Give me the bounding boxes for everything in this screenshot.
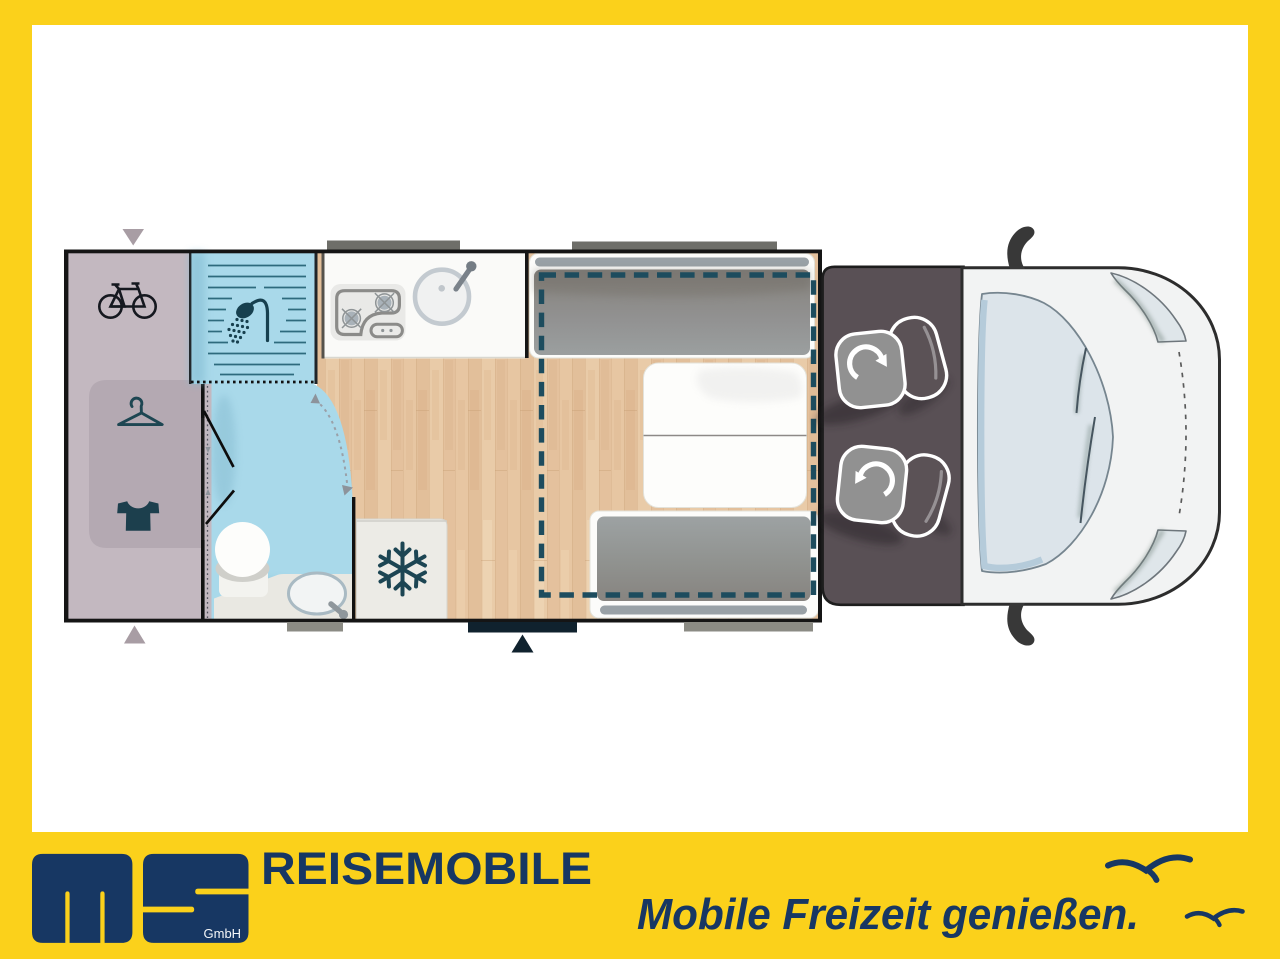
svg-text:REISEMOBILE: REISEMOBILE xyxy=(261,843,592,894)
svg-text:GmbH: GmbH xyxy=(204,926,242,941)
svg-text:Mobile Freizeit genießen.: Mobile Freizeit genießen. xyxy=(637,890,1139,939)
